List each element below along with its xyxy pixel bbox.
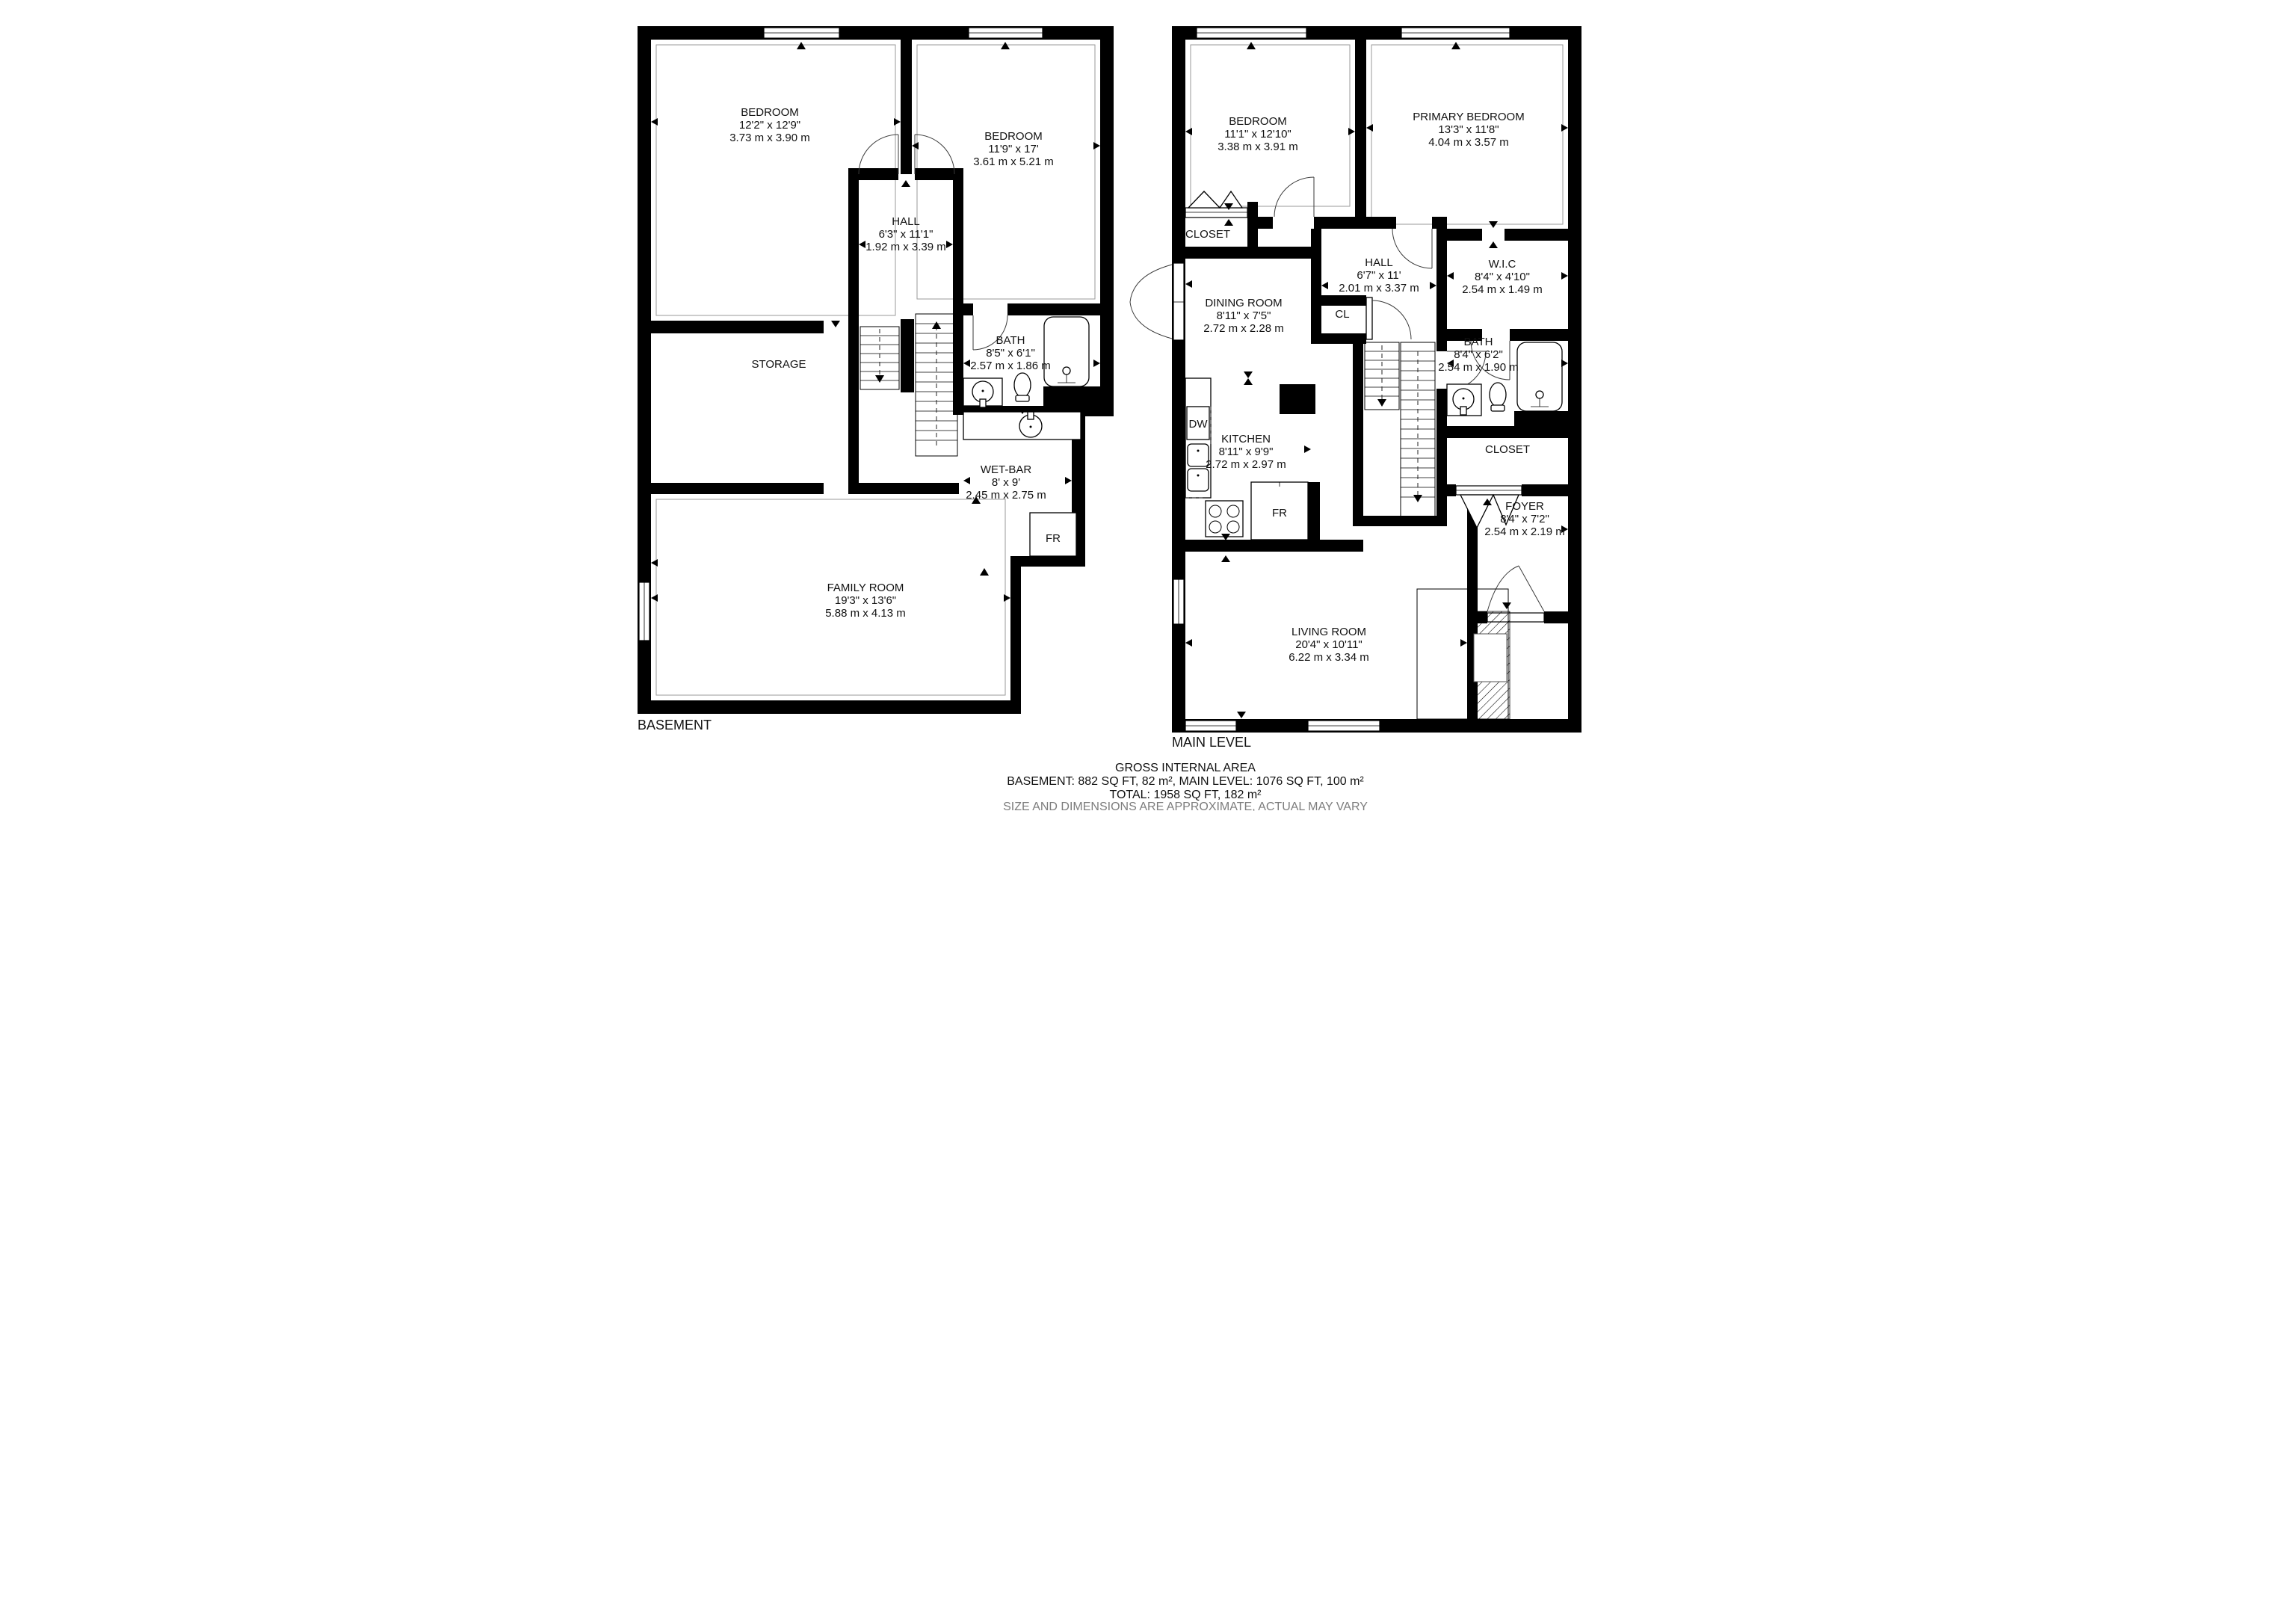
room-label-bedroom-closet: CLOSET bbox=[1185, 228, 1230, 241]
room-label-wic: W.I.C bbox=[1489, 258, 1516, 271]
room-dim-imperial: 8'5" x 6'1" bbox=[986, 347, 1035, 360]
window bbox=[1401, 28, 1510, 38]
area-breakdown: BASEMENT: 882 SQ FT, 82 m², MAIN LEVEL: … bbox=[1007, 775, 1364, 788]
room-dim-imperial: 11'1" x 12'10" bbox=[1224, 128, 1291, 141]
room-dim-metric: 2.54 m x 2.19 m bbox=[1484, 525, 1565, 538]
main-level-plan: BEDROOM 11'1" x 12'10" 3.38 m x 3.91 m P… bbox=[1130, 26, 1581, 750]
room-label-family-room: FAMILY ROOM bbox=[827, 582, 904, 594]
room-label-main-bedroom: BEDROOM bbox=[1229, 115, 1287, 128]
room-dim-metric: 3.73 m x 3.90 m bbox=[729, 132, 810, 144]
window bbox=[1173, 579, 1184, 624]
window bbox=[764, 28, 839, 38]
door-arc bbox=[1392, 229, 1432, 268]
basement-windows bbox=[639, 28, 1043, 641]
room-label-basement-bedroom-1: BEDROOM bbox=[741, 106, 799, 119]
french-door-arcs bbox=[1130, 265, 1172, 339]
room-dim-metric: 1.92 m x 3.39 m bbox=[865, 241, 946, 253]
french-door-opening bbox=[1173, 263, 1184, 340]
room-label-primary-bedroom: PRIMARY BEDROOM bbox=[1413, 111, 1524, 123]
room-dim-imperial: 6'3" x 11'1" bbox=[879, 228, 933, 241]
main-stairs bbox=[1365, 342, 1435, 517]
footer: GROSS INTERNAL AREA BASEMENT: 882 SQ FT,… bbox=[1003, 762, 1368, 811]
room-label-wetbar: WET-BAR bbox=[981, 463, 1032, 476]
kitchen-sink-icon bbox=[1188, 469, 1209, 491]
room-label-basement-bedroom-2: BEDROOM bbox=[984, 130, 1043, 143]
room-dim-imperial: 8'4" x 6'2" bbox=[1454, 348, 1503, 361]
room-label-kitchen: KITCHEN bbox=[1221, 433, 1271, 445]
bifold-door-icon bbox=[1188, 191, 1242, 208]
room-dim-imperial: 8'4" x 4'10" bbox=[1475, 271, 1530, 283]
room-dim-imperial: 20'4" x 10'11" bbox=[1295, 638, 1363, 651]
tub-faucet-icon bbox=[1536, 391, 1543, 398]
window bbox=[969, 28, 1043, 38]
fridge-label: FR bbox=[1272, 507, 1287, 519]
room-label-main-closet: CLOSET bbox=[1485, 443, 1530, 456]
floorplan-canvas: BEDROOM 12'2" x 12'9" 3.73 m x 3.90 m BE… bbox=[574, 0, 1722, 811]
toilet-icon bbox=[1014, 373, 1031, 401]
room-dim-metric: 6.22 m x 3.34 m bbox=[1289, 651, 1369, 664]
room-dim-metric: 5.88 m x 4.13 m bbox=[825, 607, 906, 620]
room-dim-imperial: 8'11" x 7'5" bbox=[1217, 309, 1271, 322]
room-label-basement-hall: HALL bbox=[892, 215, 920, 228]
room-dim-imperial: 8'4" x 7'2" bbox=[1500, 513, 1549, 525]
room-dim-metric: 2.57 m x 1.86 m bbox=[970, 360, 1051, 372]
door-arc bbox=[1274, 177, 1314, 217]
room-dim-imperial: 19'3" x 13'6" bbox=[835, 594, 896, 607]
room-dim-metric: 2.72 m x 2.97 m bbox=[1206, 458, 1286, 471]
room-label-storage: STORAGE bbox=[751, 358, 806, 371]
window bbox=[639, 582, 649, 641]
bifold-track bbox=[1456, 486, 1522, 495]
room-dim-imperial: 11'9" x 17' bbox=[988, 143, 1039, 155]
window bbox=[1185, 721, 1236, 731]
bifold-track bbox=[1185, 208, 1247, 218]
room-dim-metric: 2.01 m x 3.37 m bbox=[1339, 282, 1419, 295]
basement-plan: BEDROOM 12'2" x 12'9" 3.73 m x 3.90 m BE… bbox=[638, 26, 1114, 733]
fireplace-icon bbox=[1417, 589, 1510, 719]
room-dim-metric: 2.45 m x 2.75 m bbox=[966, 489, 1046, 502]
main-level-floor-label: MAIN LEVEL bbox=[1172, 735, 1251, 750]
floorplan-page: BEDROOM 12'2" x 12'9" 3.73 m x 3.90 m BE… bbox=[574, 0, 1722, 811]
room-dim-imperial: 8' x 9' bbox=[992, 476, 1020, 489]
window bbox=[1308, 721, 1380, 731]
room-label-main-hall: HALL bbox=[1365, 256, 1393, 269]
room-label-basement-bath: BATH bbox=[996, 334, 1025, 347]
room-dim-imperial: 12'2" x 12'9" bbox=[739, 119, 800, 132]
disclaimer: SIZE AND DIMENSIONS ARE APPROXIMATE, ACT… bbox=[1003, 801, 1368, 811]
room-label-dining-room: DINING ROOM bbox=[1205, 297, 1282, 309]
room-dim-imperial: 6'7" x 11' bbox=[1357, 269, 1401, 282]
room-label-cl-closet: CL bbox=[1335, 308, 1349, 321]
room-dim-imperial: 13'3" x 11'8" bbox=[1438, 123, 1499, 136]
room-dim-metric: 3.38 m x 3.91 m bbox=[1218, 141, 1298, 153]
room-label-living-room: LIVING ROOM bbox=[1291, 626, 1366, 638]
closet-door-arc bbox=[1366, 297, 1411, 339]
room-dim-metric: 2.72 m x 2.28 m bbox=[1203, 322, 1284, 335]
fridge-label: FR bbox=[1046, 532, 1061, 545]
tub-faucet-icon bbox=[1063, 367, 1070, 374]
gross-internal-area-title: GROSS INTERNAL AREA bbox=[1115, 762, 1256, 774]
room-dim-metric: 2.54 m x 1.90 m bbox=[1438, 361, 1519, 374]
basement-floor-label: BASEMENT bbox=[638, 718, 712, 733]
room-label-main-bath: BATH bbox=[1464, 336, 1493, 348]
room-dim-imperial: 8'11" x 9'9" bbox=[1219, 445, 1274, 458]
dishwasher-label: DW bbox=[1189, 418, 1209, 431]
toilet-icon bbox=[1490, 383, 1506, 411]
area-total: TOTAL: 1958 SQ FT, 182 m² bbox=[1109, 789, 1262, 801]
room-label-foyer: FOYER bbox=[1505, 500, 1544, 513]
stove-icon bbox=[1206, 501, 1243, 537]
room-dim-metric: 3.61 m x 5.21 m bbox=[973, 155, 1054, 168]
room-dim-metric: 4.04 m x 3.57 m bbox=[1428, 136, 1509, 149]
room-dim-metric: 2.54 m x 1.49 m bbox=[1462, 283, 1543, 296]
window bbox=[1197, 28, 1306, 38]
